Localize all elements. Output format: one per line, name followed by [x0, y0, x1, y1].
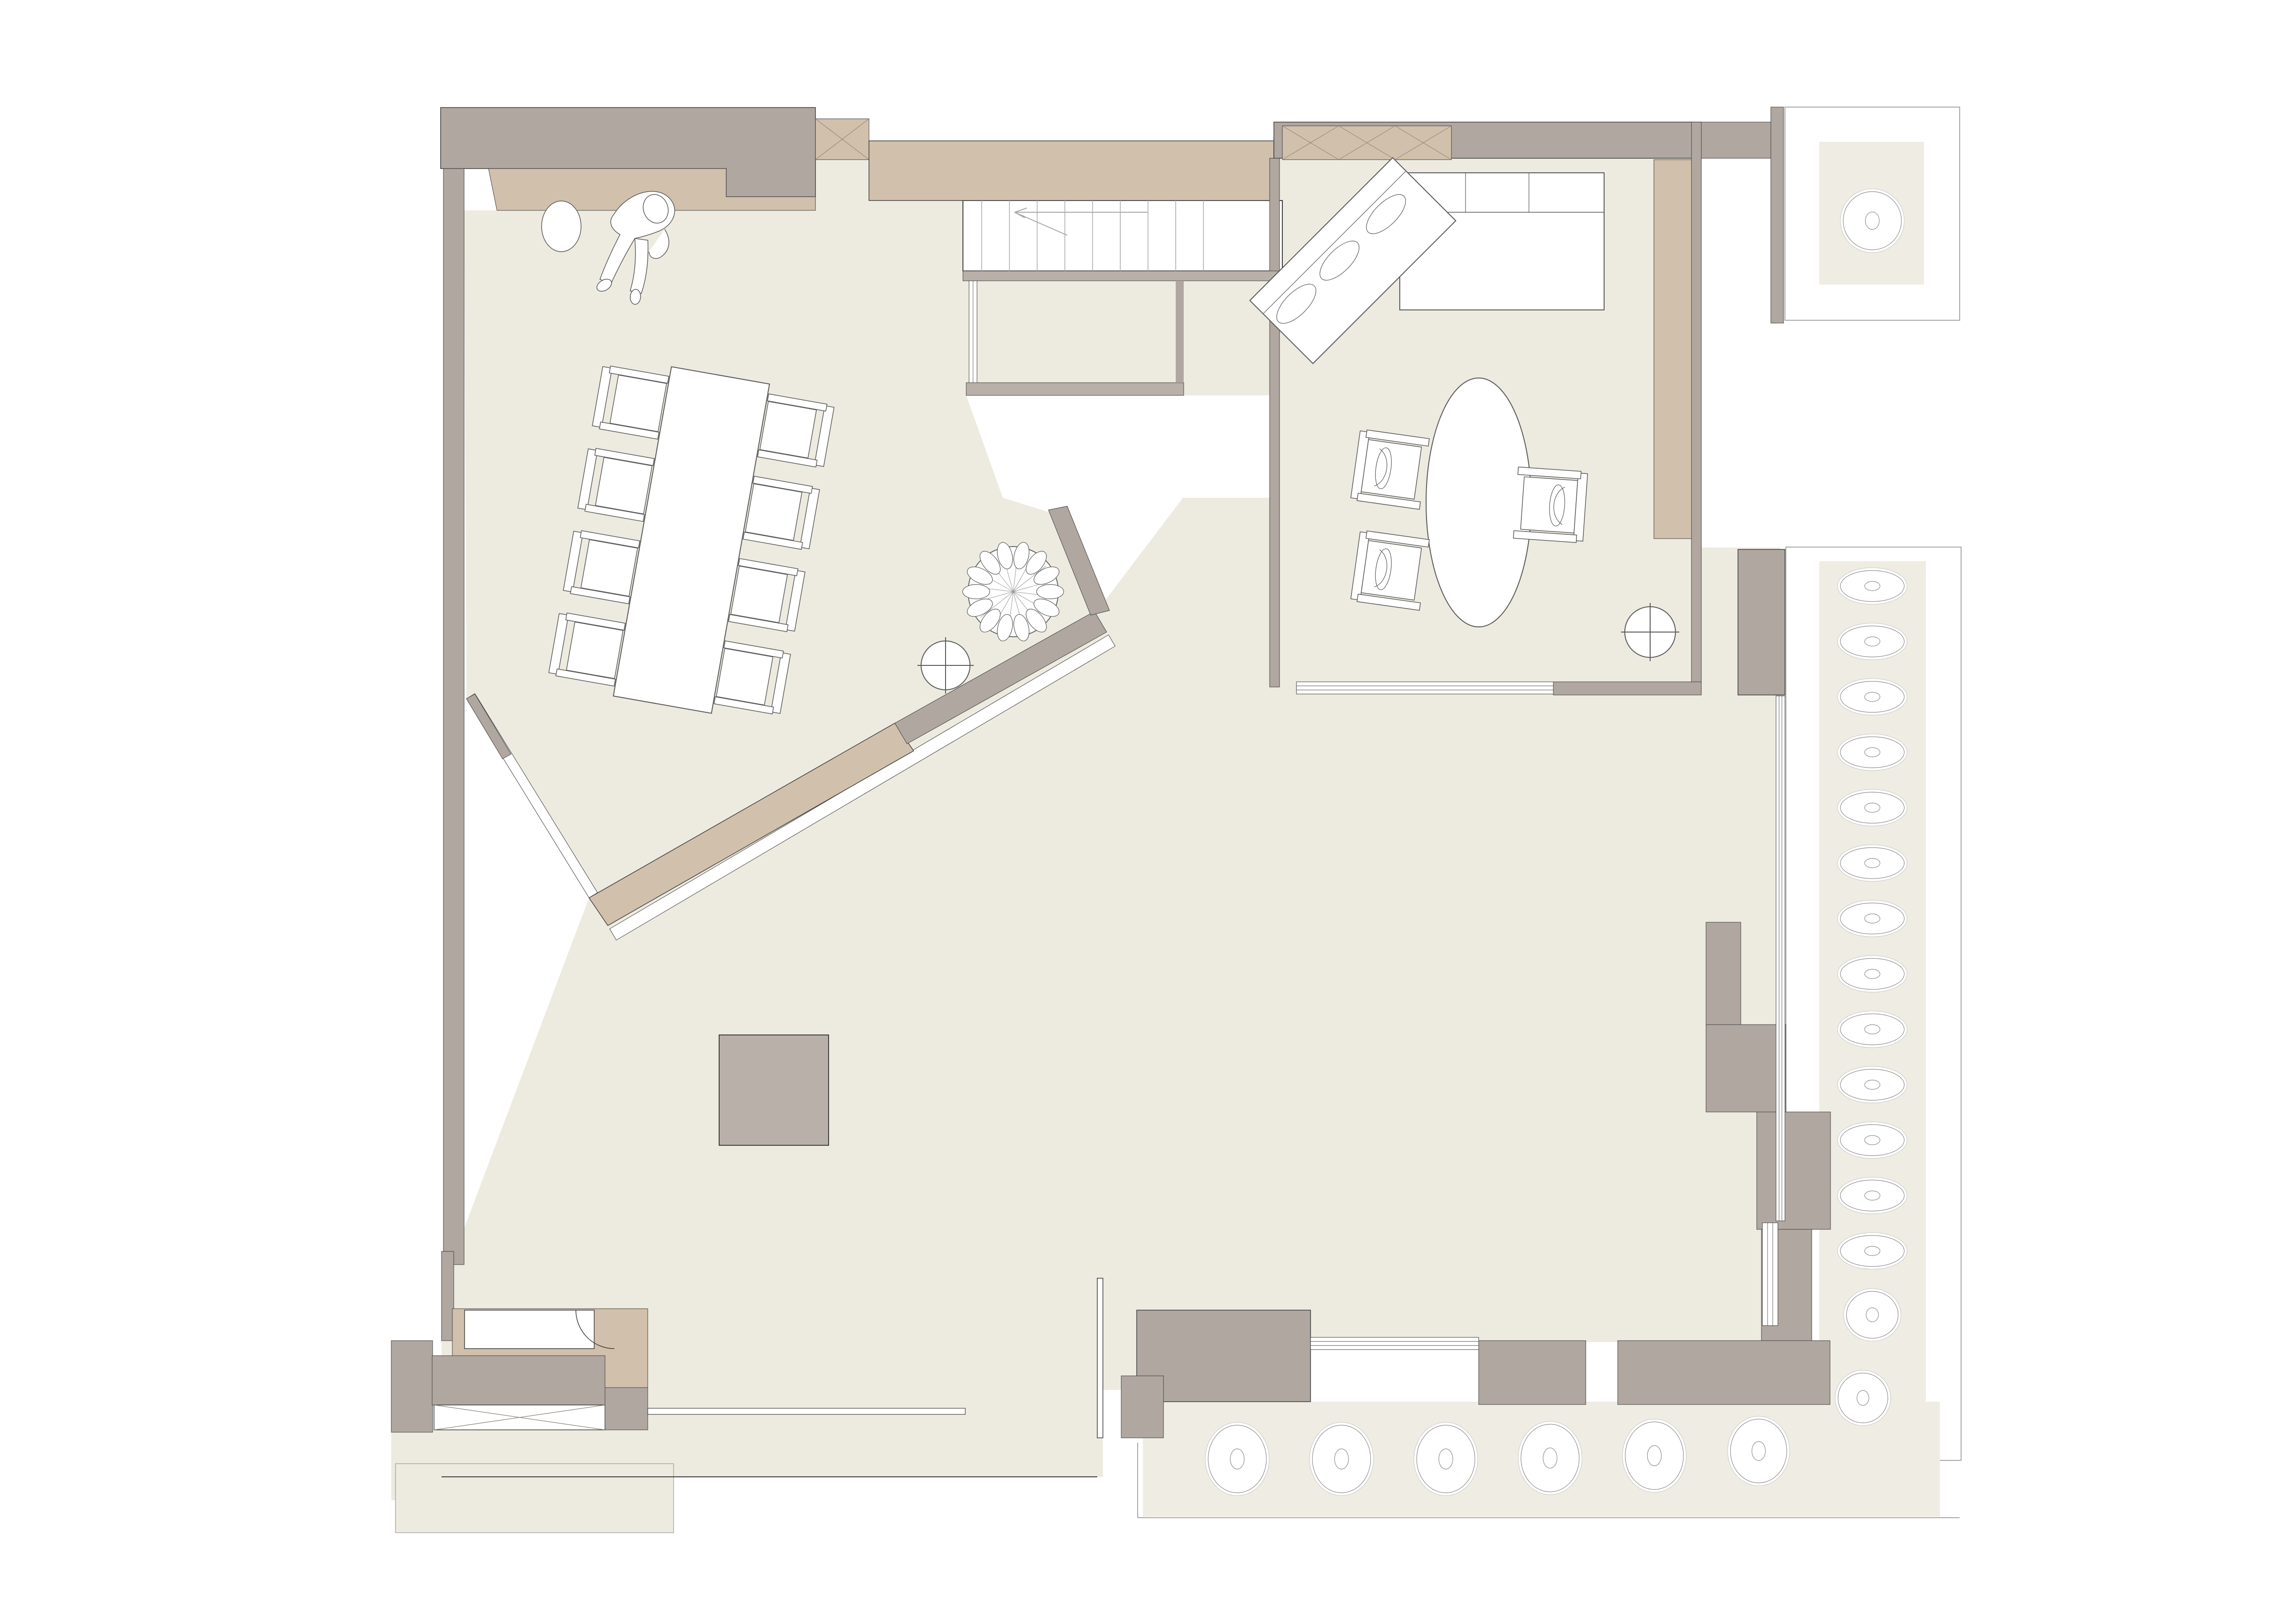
- chair-seat: [731, 566, 787, 623]
- spotlight-circle: [1838, 956, 1907, 992]
- floor-plan-page: [0, 0, 2296, 1613]
- chair-seat: [596, 457, 652, 514]
- spotlight-circle: [1414, 1422, 1478, 1496]
- spotlight-circle: [1728, 1416, 1790, 1486]
- wall-step-a: [1706, 922, 1741, 1025]
- wall-step-b: [1706, 1025, 1786, 1112]
- entrance-south-terrace: [396, 1464, 674, 1533]
- stair-beam: [963, 271, 1282, 281]
- dining-chair: [563, 529, 640, 604]
- closet-office: [1282, 126, 1451, 160]
- pier-right: [1738, 549, 1785, 695]
- spotlight-circle: [1838, 1122, 1907, 1158]
- dining-chair: [729, 558, 805, 633]
- wall-office-left: [1270, 158, 1280, 687]
- office-armchair: [1513, 467, 1588, 543]
- stair-beam-2: [966, 383, 1184, 395]
- spotlight-circle: [1518, 1421, 1582, 1495]
- wall-stairs-top: [869, 141, 1274, 201]
- spotlight-circle: [1622, 1419, 1686, 1492]
- stair-box: [963, 201, 1282, 271]
- chair-seat: [581, 540, 637, 596]
- entrance-wall-right: [605, 1388, 648, 1430]
- dining-chair: [549, 612, 625, 687]
- wall-bottom-mid: [1479, 1341, 1586, 1405]
- wall-office-bottom: [1553, 682, 1701, 695]
- wall-bottom-right: [1618, 1341, 1830, 1405]
- chair-seat: [566, 622, 623, 679]
- spotlight-circle: [1838, 1233, 1907, 1269]
- spotlight-top-right: [1840, 189, 1904, 253]
- dining-chair: [577, 447, 654, 522]
- wall-top-right-vert: [1771, 107, 1784, 323]
- corridor-void: [1184, 395, 1271, 498]
- spotlight-circle: [1835, 1370, 1891, 1426]
- spotlight-circle: [1844, 1289, 1901, 1341]
- chair-seat: [716, 648, 773, 705]
- armchair-seat: [1361, 540, 1421, 600]
- window-right: [1776, 696, 1785, 1221]
- armchair-seat: [1520, 477, 1578, 533]
- chair-seat: [610, 375, 667, 432]
- spotlight-circle: [1840, 189, 1904, 253]
- closet-top-left: [815, 119, 869, 160]
- door-leaf: [1097, 1278, 1103, 1438]
- window-office-south: [1296, 682, 1553, 694]
- wall-office-right: [1691, 122, 1701, 687]
- wall-left: [443, 169, 464, 1265]
- dining-chair: [592, 365, 668, 440]
- window-right-frame: [1776, 696, 1785, 1221]
- oval-table: [1426, 378, 1531, 627]
- dining-chair: [758, 394, 834, 469]
- stair-void-wall: [1176, 281, 1184, 383]
- wall-step-c: [1757, 1112, 1831, 1229]
- entrance-wall-left: [391, 1341, 433, 1432]
- stair-void-floor: [977, 281, 1176, 383]
- window-step: [1762, 1223, 1778, 1326]
- entrance-wall-mid: [432, 1356, 605, 1405]
- spotlight-circle: [1838, 1066, 1907, 1103]
- spotlight-circle: [1838, 1177, 1907, 1214]
- spotlight-circle: [1838, 679, 1907, 715]
- entrance-sill: [648, 1408, 965, 1414]
- dining-chair: [714, 641, 791, 716]
- pouf: [542, 201, 581, 252]
- shaft-square: [719, 1035, 829, 1145]
- spotlight-circle: [1838, 734, 1907, 771]
- window-step-frame: [1762, 1223, 1778, 1326]
- armchair-seat: [1361, 440, 1421, 499]
- floor-plan-canvas: [0, 0, 2296, 1613]
- spotlight-circle: [1838, 1011, 1907, 1048]
- spotlight-circle: [1838, 900, 1907, 937]
- spotlight-circle: [1310, 1422, 1373, 1496]
- entrance-wall-stub: [442, 1251, 454, 1341]
- window-hall-south-frame: [1311, 1337, 1479, 1350]
- wall-bottom-step: [1121, 1376, 1164, 1438]
- dining-chair: [743, 476, 820, 551]
- window-office-south-frame: [1296, 682, 1553, 694]
- window-hall-south: [1311, 1337, 1479, 1350]
- spotlight-circle: [1838, 568, 1907, 604]
- window-stair-void: [969, 281, 977, 383]
- spotlight-circle: [1838, 845, 1907, 881]
- spotlight-circle: [1205, 1422, 1269, 1496]
- ledge-office-right: [1654, 160, 1691, 539]
- spotlight-circle: [1838, 789, 1907, 826]
- spotlight-circle: [1838, 623, 1907, 660]
- chair-seat: [745, 484, 802, 540]
- chair-seat: [760, 401, 816, 458]
- entrance-niche: [465, 1310, 594, 1349]
